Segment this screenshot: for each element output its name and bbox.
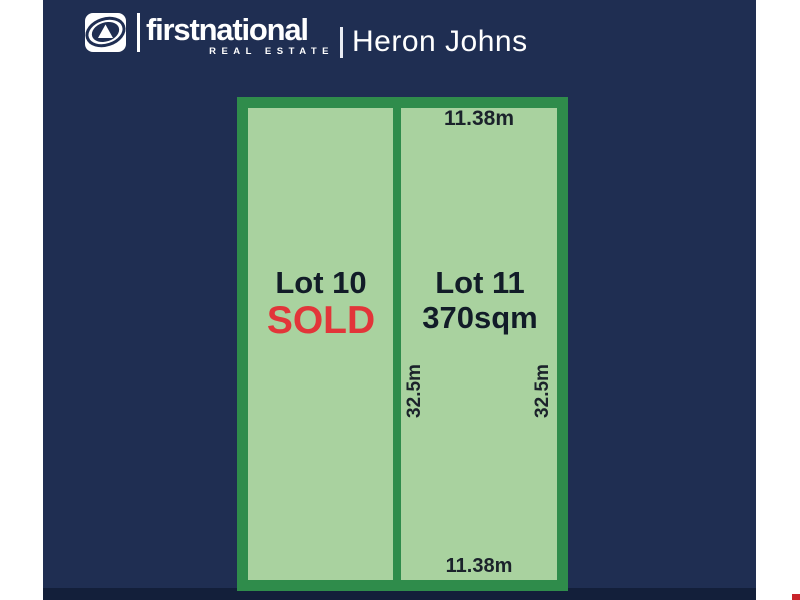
agency-divider-bar	[340, 27, 343, 58]
flyer-page: firstnational REAL ESTATE Heron Johns 11…	[0, 0, 800, 600]
lot11-frontage-top-label: 11.38m	[401, 107, 557, 131]
lot11-frontage-bottom-label: 11.38m	[401, 555, 557, 578]
brand-name: firstnational	[146, 13, 346, 47]
logo-divider-bar	[137, 13, 140, 52]
lot11-label: Lot 11	[402, 266, 558, 299]
first-national-logo-icon	[85, 12, 129, 53]
lot10-label: Lot 10	[248, 266, 394, 299]
lot-boundary-line	[393, 108, 401, 580]
agency-name: Heron Johns	[352, 25, 528, 59]
corner-red-mark	[792, 594, 800, 600]
lot11-depth-right-label: 32.5m	[532, 351, 554, 431]
site-plan-area	[248, 108, 557, 580]
brand-tagline: REAL ESTATE	[146, 46, 334, 57]
lot11-area-label: 370sqm	[402, 301, 558, 334]
lot10-sold-badge: SOLD	[248, 300, 394, 341]
lot11-depth-left-label: 32.5m	[404, 351, 426, 431]
